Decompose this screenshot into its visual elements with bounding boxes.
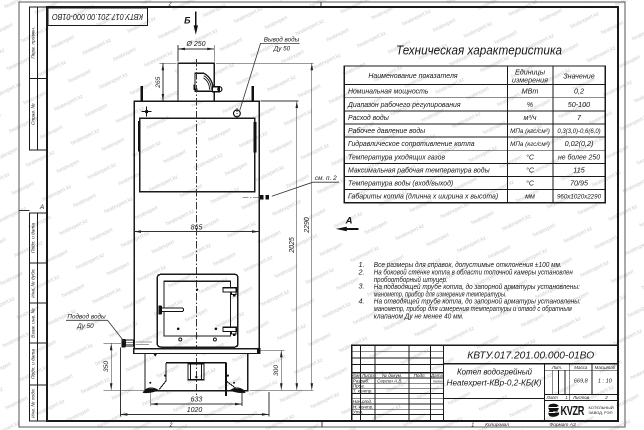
svg-text:А: А: [345, 215, 353, 226]
svg-text:300: 300: [273, 365, 280, 376]
svg-text:70/95: 70/95: [570, 179, 589, 188]
svg-text:Номинальная мощность: Номинальная мощность: [348, 89, 429, 96]
svg-text:2025: 2025: [289, 237, 296, 254]
svg-text:Инв. № дубл.: Инв. № дубл.: [31, 268, 37, 298]
svg-text:Все размеры для справок, допус: Все размеры для справок, допустимые откл…: [374, 261, 562, 269]
svg-text:4.: 4.: [359, 297, 365, 306]
svg-text:КВТУ.017.201.00.000-01ВО: КВТУ.017.201.00.000-01ВО: [467, 350, 594, 361]
svg-text:Наименование показателя: Наименование показателя: [368, 73, 458, 80]
svg-text:Масштаб: Масштаб: [595, 365, 616, 370]
svg-text:Масса: Масса: [574, 365, 588, 370]
svg-text:1020: 1020: [187, 407, 203, 414]
svg-text:Ду 50: Ду 50: [273, 46, 291, 53]
svg-text:Ø 250: Ø 250: [185, 41, 205, 48]
svg-text:м³/ч: м³/ч: [523, 113, 536, 122]
svg-text:°С: °С: [526, 179, 535, 188]
svg-text:Сергин А.В.: Сергин А.В.: [377, 378, 403, 383]
svg-text:Справ. №: Справ. №: [31, 103, 37, 125]
svg-text:865: 865: [191, 224, 203, 231]
svg-text:Н. контр.: Н. контр.: [353, 404, 374, 409]
svg-text:Нач.отд.: Нач.отд.: [353, 399, 372, 404]
svg-text:№ докум.: № докум.: [382, 373, 402, 378]
svg-text:2: 2: [604, 395, 608, 400]
svg-text:3.: 3.: [359, 281, 365, 290]
svg-text:633: 633: [191, 397, 203, 404]
svg-text:МВт: МВт: [522, 87, 539, 96]
svg-text:50-100: 50-100: [568, 100, 590, 109]
svg-text:Ду 50: Ду 50: [76, 323, 94, 330]
svg-text:ЗАВОД, РЭП: ЗАВОД, РЭП: [589, 410, 613, 415]
svg-text:Дата: Дата: [430, 373, 444, 378]
svg-text:2290: 2290: [304, 217, 311, 234]
svg-text:Подп. и дата: Подп. и дата: [31, 349, 37, 379]
svg-text:МПа (кгс/см²): МПа (кгс/см²): [510, 141, 550, 148]
svg-text:1: 1: [471, 423, 474, 429]
svg-text:МПа (кгс/см²): МПа (кгс/см²): [510, 128, 550, 135]
svg-text:350: 350: [103, 361, 110, 372]
svg-text:Подп.: Подп.: [414, 373, 426, 378]
svg-text:2.: 2.: [358, 268, 365, 277]
svg-text:Формат А3: Формат А3: [549, 422, 576, 428]
svg-text:не более 250: не более 250: [558, 153, 600, 161]
svg-text:°С: °С: [526, 165, 535, 174]
svg-text:265: 265: [155, 76, 162, 88]
svg-text:Вывод воды: Вывод воды: [264, 36, 300, 44]
svg-text:измерения: измерения: [512, 76, 548, 85]
svg-text:Лист: Лист: [361, 373, 374, 378]
svg-text:На боковой стенке котла в обла: На боковой стенке котла в области топочн…: [374, 269, 573, 277]
svg-text:669,8: 669,8: [574, 379, 589, 385]
svg-text:пилих: пилих: [433, 379, 443, 383]
svg-text:Температура уходящих газов: Температура уходящих газов: [348, 153, 446, 161]
svg-text:960х1020х2290: 960х1020х2290: [557, 194, 602, 201]
svg-text:манометр, прибор для измерения: манометр, прибор для измерения температу…: [374, 290, 507, 298]
svg-text:Лист: Лист: [546, 395, 559, 400]
svg-text:°С: °С: [526, 152, 535, 161]
svg-text:На подводящей трубе котла, до: На подводящей трубе котла, до запорной а…: [374, 283, 580, 291]
svg-text:Котел водогрейный: Котел водогрейный: [457, 368, 533, 377]
svg-text:Техническая характеристика: Техническая характеристика: [396, 43, 562, 58]
svg-text:Рабочее давление воды: Рабочее давление воды: [348, 127, 425, 135]
svg-text:пробоотборный штуцер.: пробоотборный штуцер.: [374, 276, 448, 284]
svg-text:Подвод воды: Подвод воды: [67, 312, 106, 320]
svg-text:Температура воды (вход/выход): Температура воды (вход/выход): [348, 180, 453, 188]
svg-text:Подп. и дата: Подп. и дата: [31, 223, 37, 253]
svg-text:KVZR: KVZR: [561, 405, 585, 419]
svg-text:Гидравлическое сопротивление к: Гидравлическое сопротивление котла: [348, 140, 475, 148]
svg-text:Листов: Листов: [572, 395, 590, 400]
svg-text:А: А: [39, 204, 44, 211]
svg-text:Максимальная рабочая температу: Максимальная рабочая температура воды: [348, 166, 490, 174]
svg-text:0,3(3,0)-0,6(6,0): 0,3(3,0)-0,6(6,0): [557, 129, 600, 135]
svg-text:0,2: 0,2: [574, 87, 584, 96]
svg-text:На отводящей трубе котла, до з: На отводящей трубе котла, до запорной ар…: [374, 298, 581, 306]
svg-text:см. п. 2: см. п. 2: [315, 175, 337, 182]
svg-text:Габариты котла (длинна х ширин: Габариты котла (длинна х ширина х высота…: [348, 193, 498, 201]
svg-text:Утв.: Утв.: [353, 410, 363, 415]
svg-text:Инв. № подл.: Инв. № подл.: [31, 388, 37, 418]
svg-text:Копировал: Копировал: [485, 422, 509, 428]
svg-text:Расход воды: Расход воды: [348, 114, 389, 122]
svg-text:Значение: Значение: [563, 72, 595, 81]
svg-text:Взам. инв. №: Взам. инв. №: [31, 308, 37, 338]
svg-text:115: 115: [573, 165, 585, 174]
svg-text:Перв. примен.: Перв. примен.: [31, 27, 37, 59]
svg-text:клапаном Ду не менее 40 мм.: клапаном Ду не менее 40 мм.: [374, 313, 464, 320]
svg-text:манометр, прибор для измерения: манометр, прибор для измерения температу…: [374, 305, 572, 313]
svg-text:Изм.: Изм.: [351, 373, 361, 378]
svg-text:1 : 10: 1 : 10: [598, 379, 613, 385]
svg-text:Т. контр.: Т. контр.: [353, 389, 373, 394]
svg-text:2: 2: [169, 423, 173, 429]
svg-text:Б: Б: [184, 16, 191, 26]
svg-text:Heatexpert-КВр-0,2-КБ(К): Heatexpert-КВр-0,2-КБ(К): [447, 379, 542, 388]
svg-text:Диапазон рабочего регулировани: Диапазон рабочего регулирования: [347, 101, 461, 109]
svg-text:%: %: [527, 100, 534, 109]
svg-text:0,02(0,2): 0,02(0,2): [565, 139, 594, 148]
svg-text:Лит.: Лит.: [551, 365, 562, 370]
svg-text:КВТУ.017.201.00.000-01ВО: КВТУ.017.201.00.000-01ВО: [52, 12, 143, 21]
svg-text:мм: мм: [525, 192, 535, 201]
